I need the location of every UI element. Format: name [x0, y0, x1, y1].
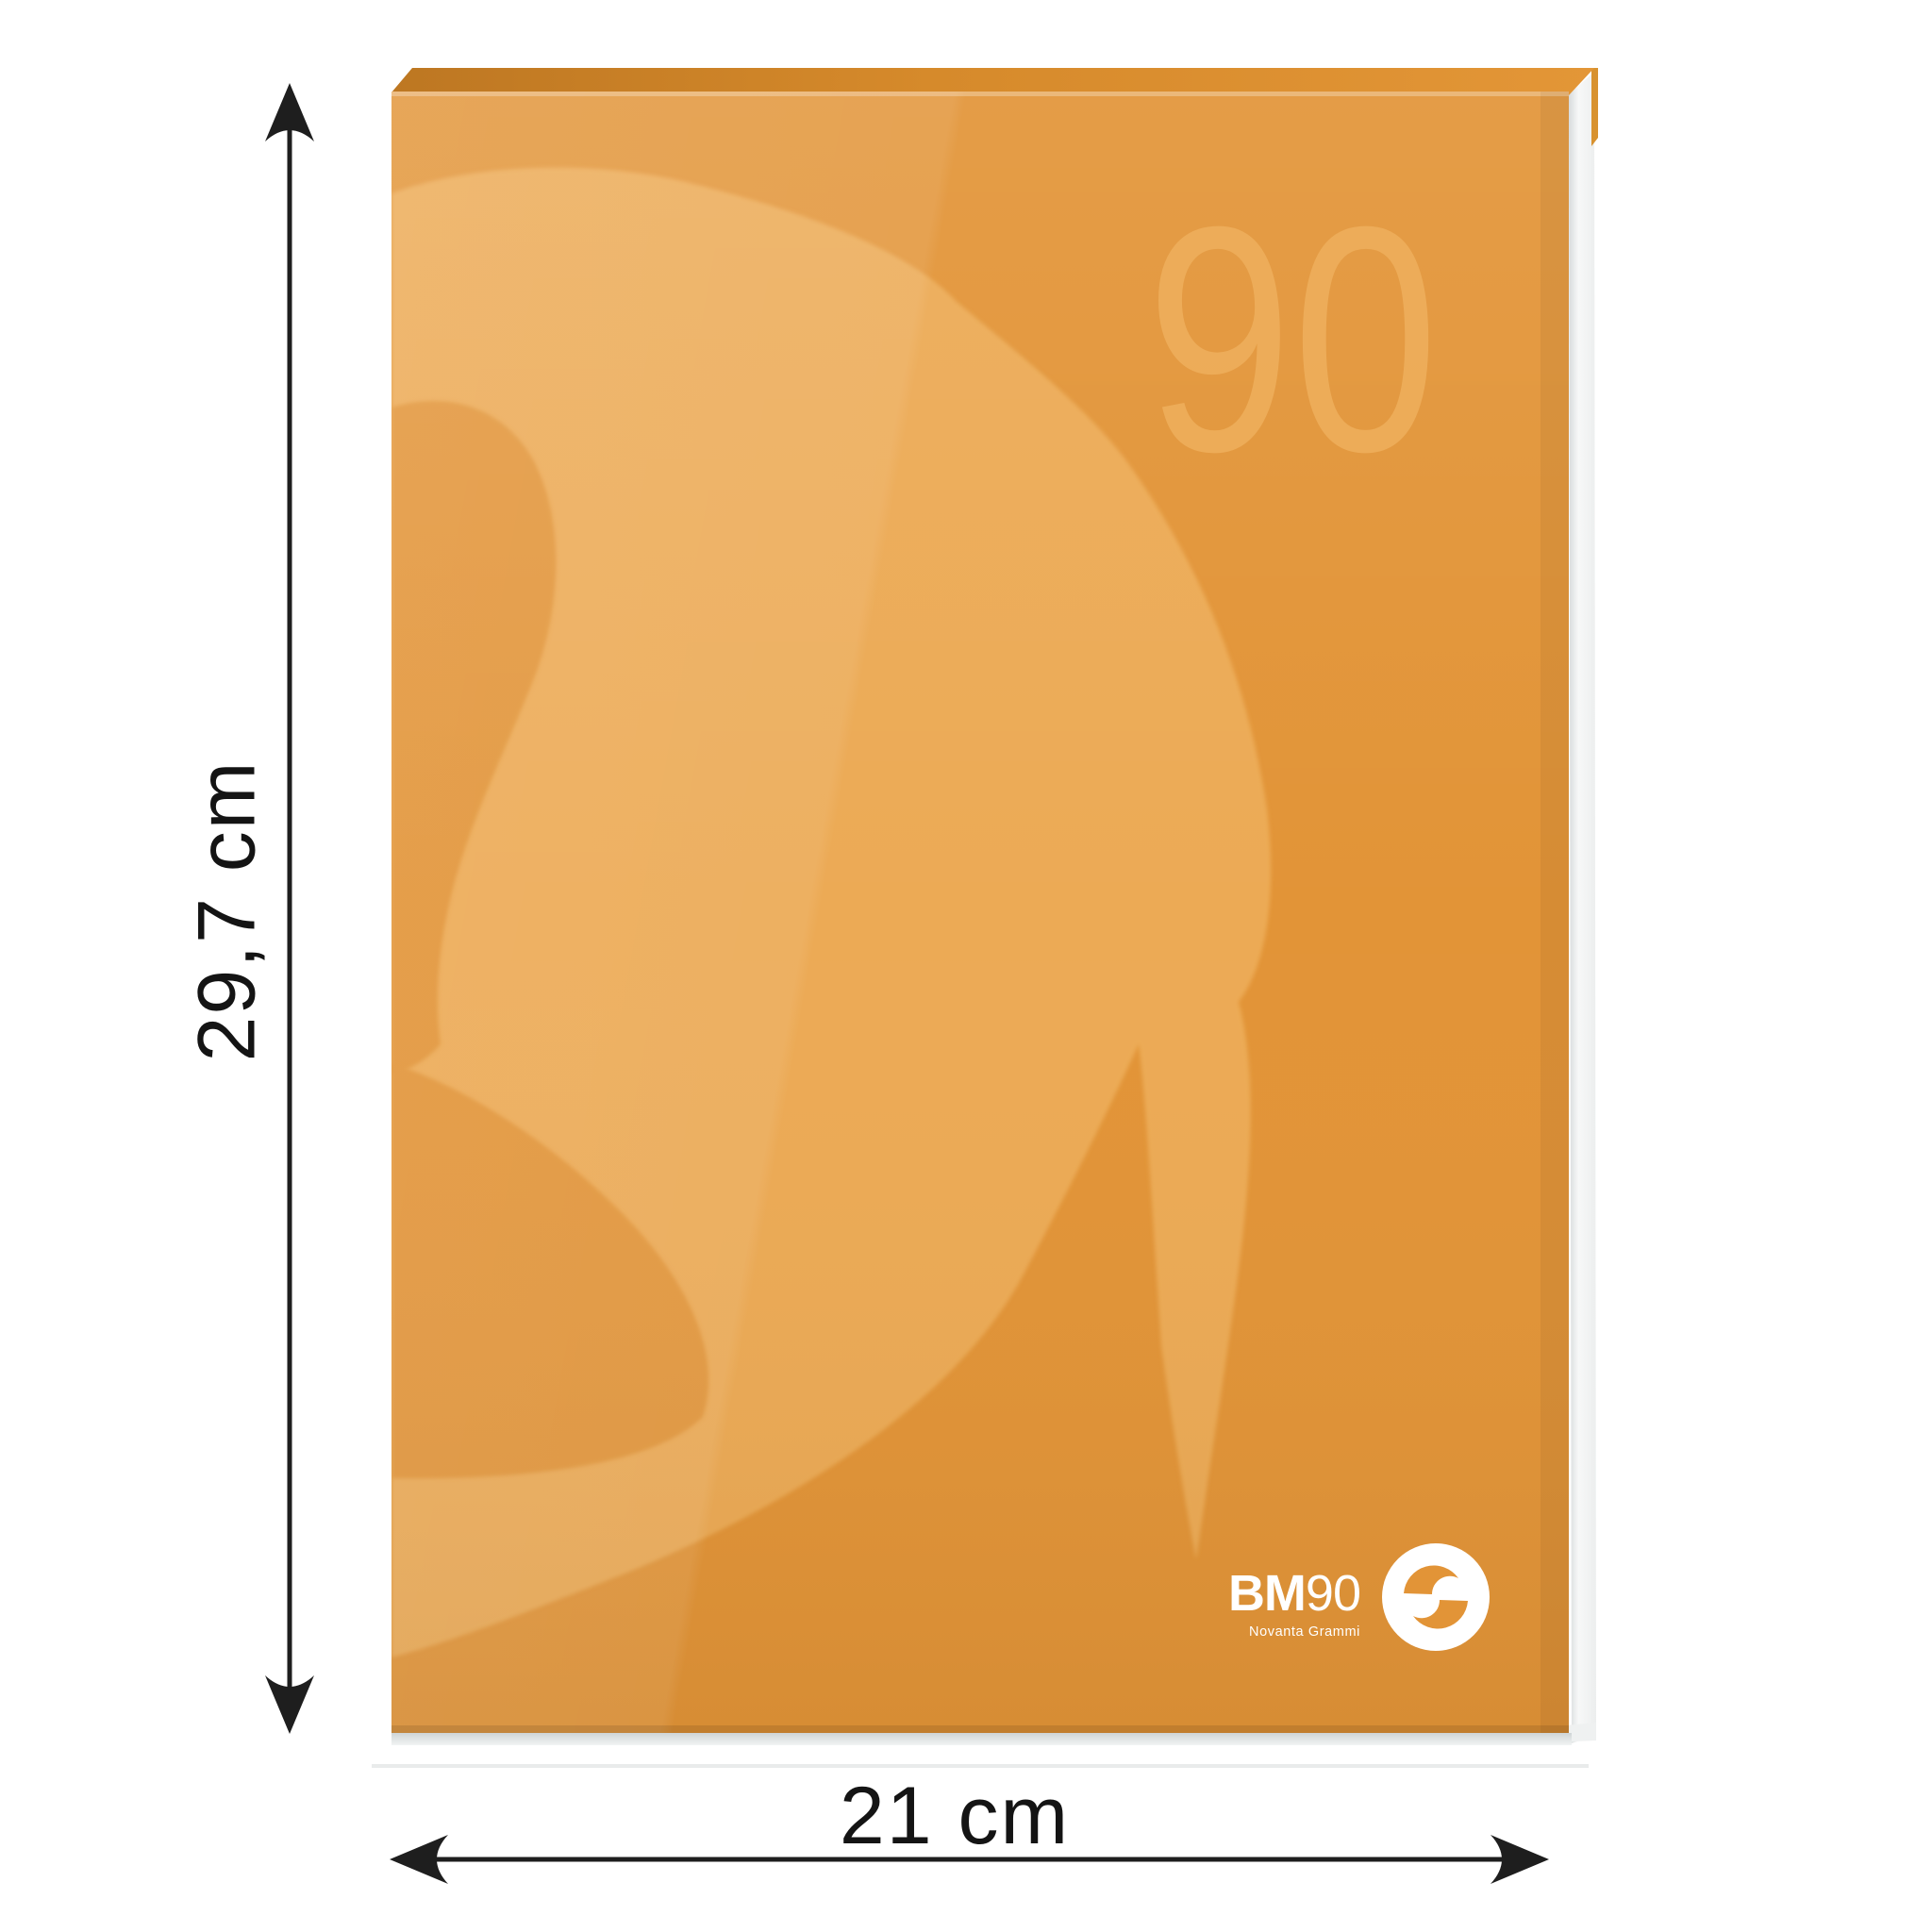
table-shadow-line [372, 1764, 1589, 1768]
brand-name-bm: BM [1228, 1565, 1306, 1622]
brand-tagline: Novanta Grammi [1217, 1625, 1360, 1640]
back-cover-sliver [1591, 68, 1598, 146]
brand-logo-mark [1382, 1543, 1490, 1651]
page-block-right [1569, 72, 1596, 1743]
page-block-under-strip [391, 1733, 1572, 1745]
notebook-illustration [0, 0, 1932, 1932]
brand-name: BM90 [1217, 1568, 1360, 1619]
brand-name-90: 90 [1306, 1565, 1360, 1622]
product-image: 90 BM90 Novanta Grammi 29,7 cm 21 cm [0, 0, 1932, 1932]
height-dimension-label: 29,7 cm [181, 628, 275, 1194]
brand-logo-text: BM90 Novanta Grammi [1217, 1568, 1360, 1640]
width-dimension-label: 21 cm [672, 1770, 1238, 1863]
cover-watermark: 90 [1130, 179, 1455, 500]
notebook-top-edge [391, 68, 1594, 95]
